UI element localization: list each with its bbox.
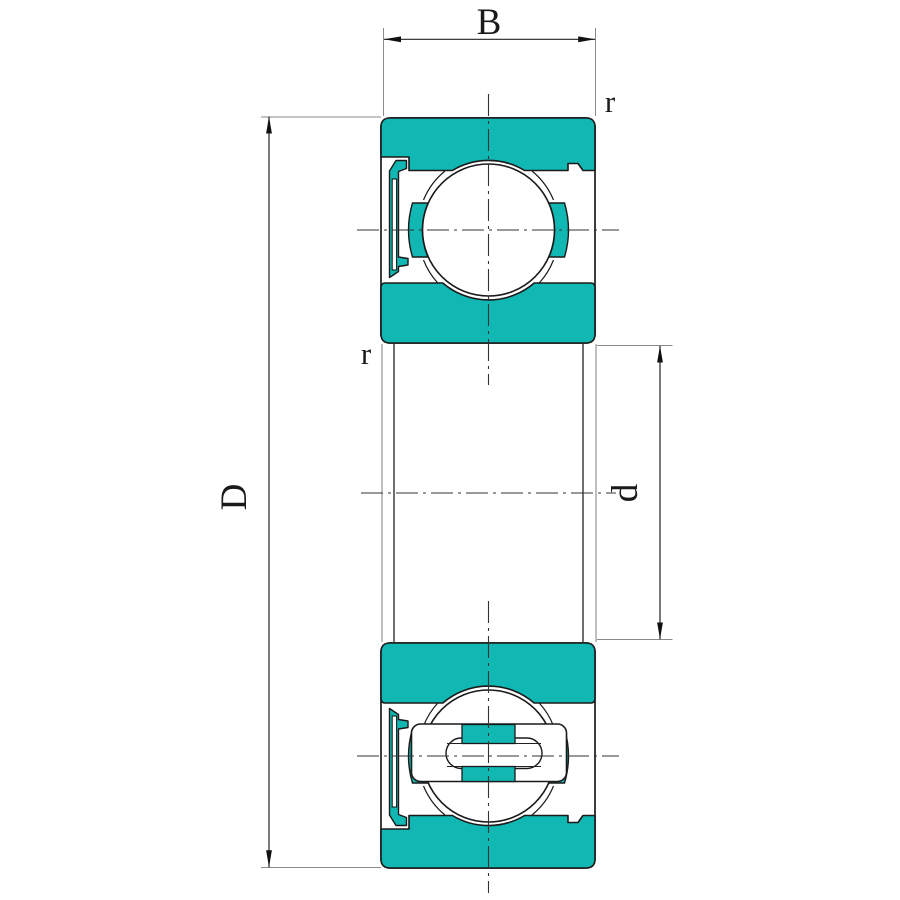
arrowhead-right (578, 36, 595, 42)
dim-label-B: B (477, 2, 502, 43)
dim-label-D: D (214, 484, 255, 511)
arrowhead-left (384, 36, 401, 42)
bearing-cross-section-diagram: B D d r r (0, 0, 900, 900)
arrowhead-up (657, 346, 663, 363)
dimension-D: D (214, 117, 381, 868)
arrowhead-up (266, 117, 272, 134)
arrowhead-down (657, 623, 663, 640)
dimension-B: B (384, 2, 596, 116)
dim-label-d: d (605, 483, 646, 502)
radius-label-inner: r (361, 336, 372, 371)
arrowhead-down (266, 850, 272, 867)
dimension-d: d (597, 346, 673, 640)
bearing-drawing-page: B D d r r (0, 0, 900, 900)
radius-label-outer: r (605, 84, 616, 119)
